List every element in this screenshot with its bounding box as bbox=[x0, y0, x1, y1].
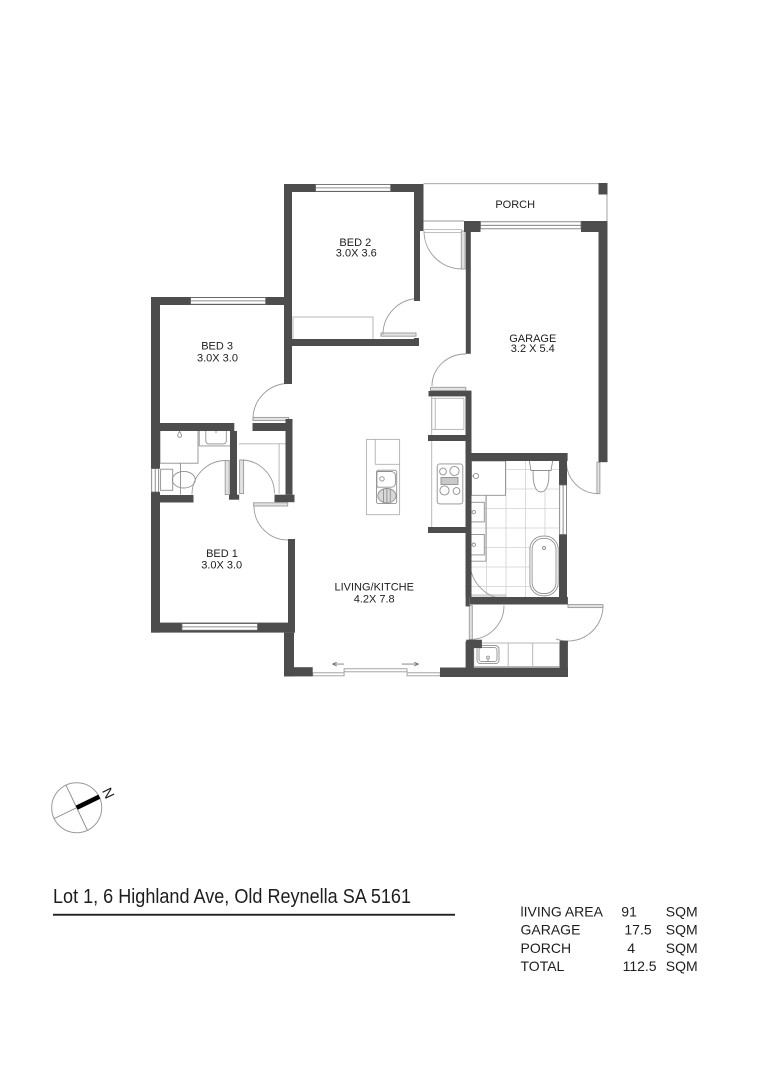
svg-text:BED 1: BED 1 bbox=[206, 548, 238, 560]
svg-text:3.0X 3.0: 3.0X 3.0 bbox=[197, 352, 238, 364]
svg-text:GARAGE: GARAGE bbox=[521, 922, 581, 938]
svg-text:SQM: SQM bbox=[666, 940, 698, 956]
svg-text:BED 3: BED 3 bbox=[201, 341, 233, 353]
svg-text:4: 4 bbox=[627, 940, 635, 956]
svg-text:17.5: 17.5 bbox=[624, 922, 651, 938]
svg-text:3.2 X 5.4: 3.2 X 5.4 bbox=[511, 343, 555, 355]
svg-text:TOTAL: TOTAL bbox=[521, 958, 565, 974]
svg-text:PORCH: PORCH bbox=[521, 940, 572, 956]
svg-text:3.0X 3.6: 3.0X 3.6 bbox=[336, 247, 377, 259]
svg-text:4.2X 7.8: 4.2X 7.8 bbox=[354, 594, 395, 606]
svg-text:LIVING/KITCHE: LIVING/KITCHE bbox=[334, 582, 413, 594]
svg-text:PORCH: PORCH bbox=[495, 199, 535, 211]
svg-text:SQM: SQM bbox=[666, 922, 698, 938]
svg-text:SQM: SQM bbox=[666, 904, 698, 920]
svg-text:3.0X 3.0: 3.0X 3.0 bbox=[201, 560, 242, 572]
svg-text:Lot 1, 6 Highland Ave, Old Rey: Lot 1, 6 Highland Ave, Old Reynella SA 5… bbox=[53, 885, 411, 908]
svg-text:SQM: SQM bbox=[666, 958, 698, 974]
svg-text:91: 91 bbox=[621, 904, 637, 920]
svg-text:lIVING AREA: lIVING AREA bbox=[521, 904, 604, 920]
svg-text:112.5: 112.5 bbox=[623, 958, 657, 974]
